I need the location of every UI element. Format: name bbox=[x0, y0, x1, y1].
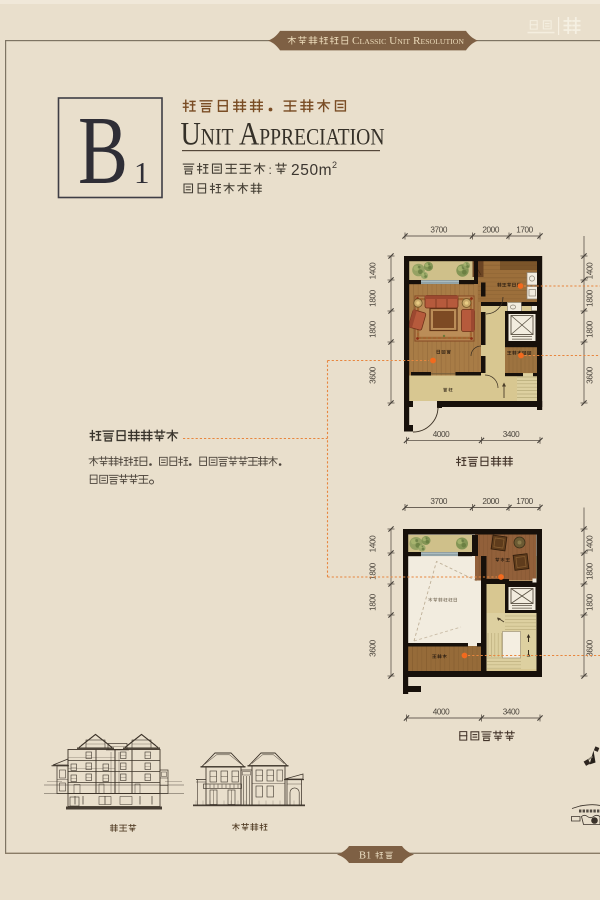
svg-text:250m: 250m bbox=[291, 162, 332, 179]
svg-text:2000: 2000 bbox=[482, 226, 499, 235]
svg-text::: : bbox=[269, 163, 272, 177]
svg-text:1800: 1800 bbox=[586, 562, 595, 579]
svg-text:B1: B1 bbox=[359, 851, 371, 862]
svg-text:3400: 3400 bbox=[503, 430, 520, 439]
svg-text:3700: 3700 bbox=[430, 226, 447, 235]
svg-text:Unit Appreciation: Unit Appreciation bbox=[181, 117, 385, 153]
svg-text:2000: 2000 bbox=[482, 497, 499, 506]
svg-text:3700: 3700 bbox=[430, 497, 447, 506]
svg-text:1800: 1800 bbox=[369, 320, 378, 337]
svg-text:1400: 1400 bbox=[586, 535, 595, 552]
svg-text:3600: 3600 bbox=[586, 366, 595, 383]
svg-text:4000: 4000 bbox=[433, 708, 450, 717]
svg-text:1400: 1400 bbox=[586, 262, 595, 279]
svg-text:2: 2 bbox=[332, 160, 337, 170]
svg-text:1: 1 bbox=[134, 155, 150, 190]
svg-text:3600: 3600 bbox=[586, 639, 595, 656]
svg-text:1800: 1800 bbox=[369, 593, 378, 610]
svg-text:B: B bbox=[78, 97, 128, 204]
svg-text:3600: 3600 bbox=[369, 639, 378, 656]
svg-text:1800: 1800 bbox=[369, 289, 378, 306]
svg-text:1400: 1400 bbox=[369, 262, 378, 279]
svg-text:4000: 4000 bbox=[433, 430, 450, 439]
svg-text:Classic Unit Resolution: Classic Unit Resolution bbox=[352, 36, 464, 47]
svg-text:1700: 1700 bbox=[516, 226, 533, 235]
svg-text:1800: 1800 bbox=[586, 593, 595, 610]
svg-text:1700: 1700 bbox=[516, 497, 533, 506]
svg-text:1800: 1800 bbox=[586, 320, 595, 337]
svg-text:3400: 3400 bbox=[503, 708, 520, 717]
svg-text:1800: 1800 bbox=[586, 289, 595, 306]
svg-text:1400: 1400 bbox=[369, 535, 378, 552]
svg-text:3600: 3600 bbox=[369, 366, 378, 383]
